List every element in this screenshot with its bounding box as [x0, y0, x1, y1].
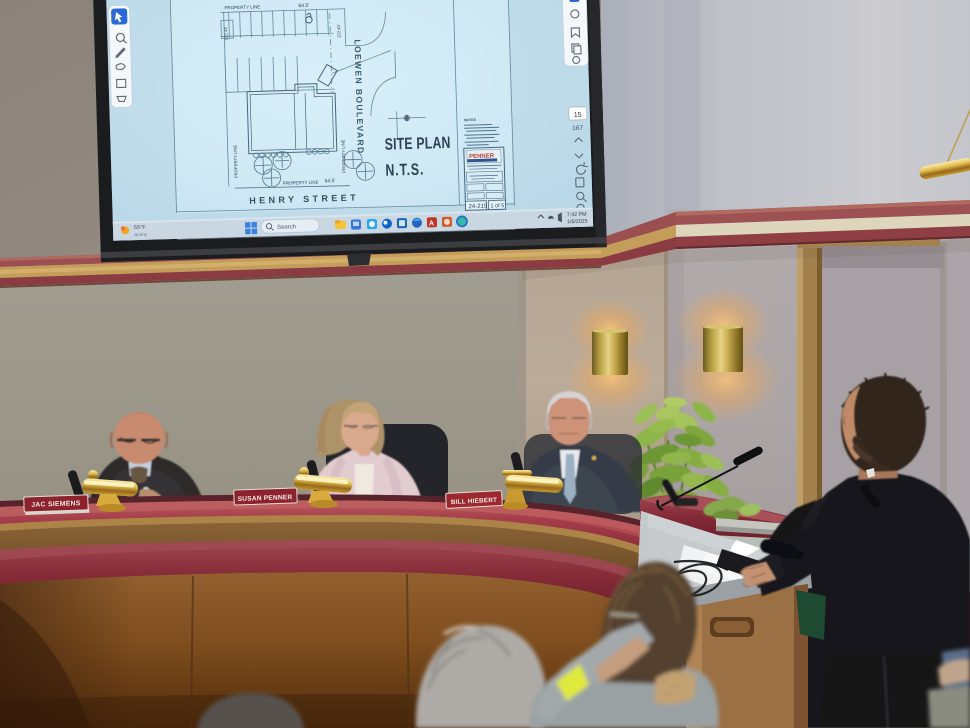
svg-text:PROPERTY LINE: PROPERTY LINE — [233, 144, 239, 178]
svg-text:64.5': 64.5' — [325, 178, 336, 184]
svg-text:1 of 5: 1 of 5 — [490, 203, 504, 209]
svg-text:167: 167 — [572, 125, 583, 132]
svg-text:1/6/2025: 1/6/2025 — [567, 219, 588, 226]
svg-text:122.43': 122.43' — [223, 26, 228, 40]
svg-text:NOTES: NOTES — [464, 118, 477, 122]
svg-text:64.5': 64.5' — [298, 3, 309, 9]
svg-text:N.T.S.: N.T.S. — [385, 161, 424, 180]
svg-text:55°F: 55°F — [134, 225, 146, 231]
svg-text:Search: Search — [277, 224, 296, 231]
svg-text:PROPERTY LINE: PROPERTY LINE — [224, 4, 260, 10]
svg-text:Sunny: Sunny — [134, 232, 148, 237]
svg-text:15: 15 — [574, 112, 582, 119]
svg-text:PROPERTY LINE: PROPERTY LINE — [340, 139, 346, 173]
svg-text:24-215: 24-215 — [468, 204, 488, 211]
svg-text:7:42 PM: 7:42 PM — [567, 212, 587, 219]
svg-text:SITE PLAN: SITE PLAN — [384, 134, 450, 154]
svg-text:122.43': 122.43' — [336, 24, 341, 38]
svg-text:A: A — [429, 220, 434, 227]
svg-text:PROPERTY LINE: PROPERTY LINE — [283, 180, 319, 186]
